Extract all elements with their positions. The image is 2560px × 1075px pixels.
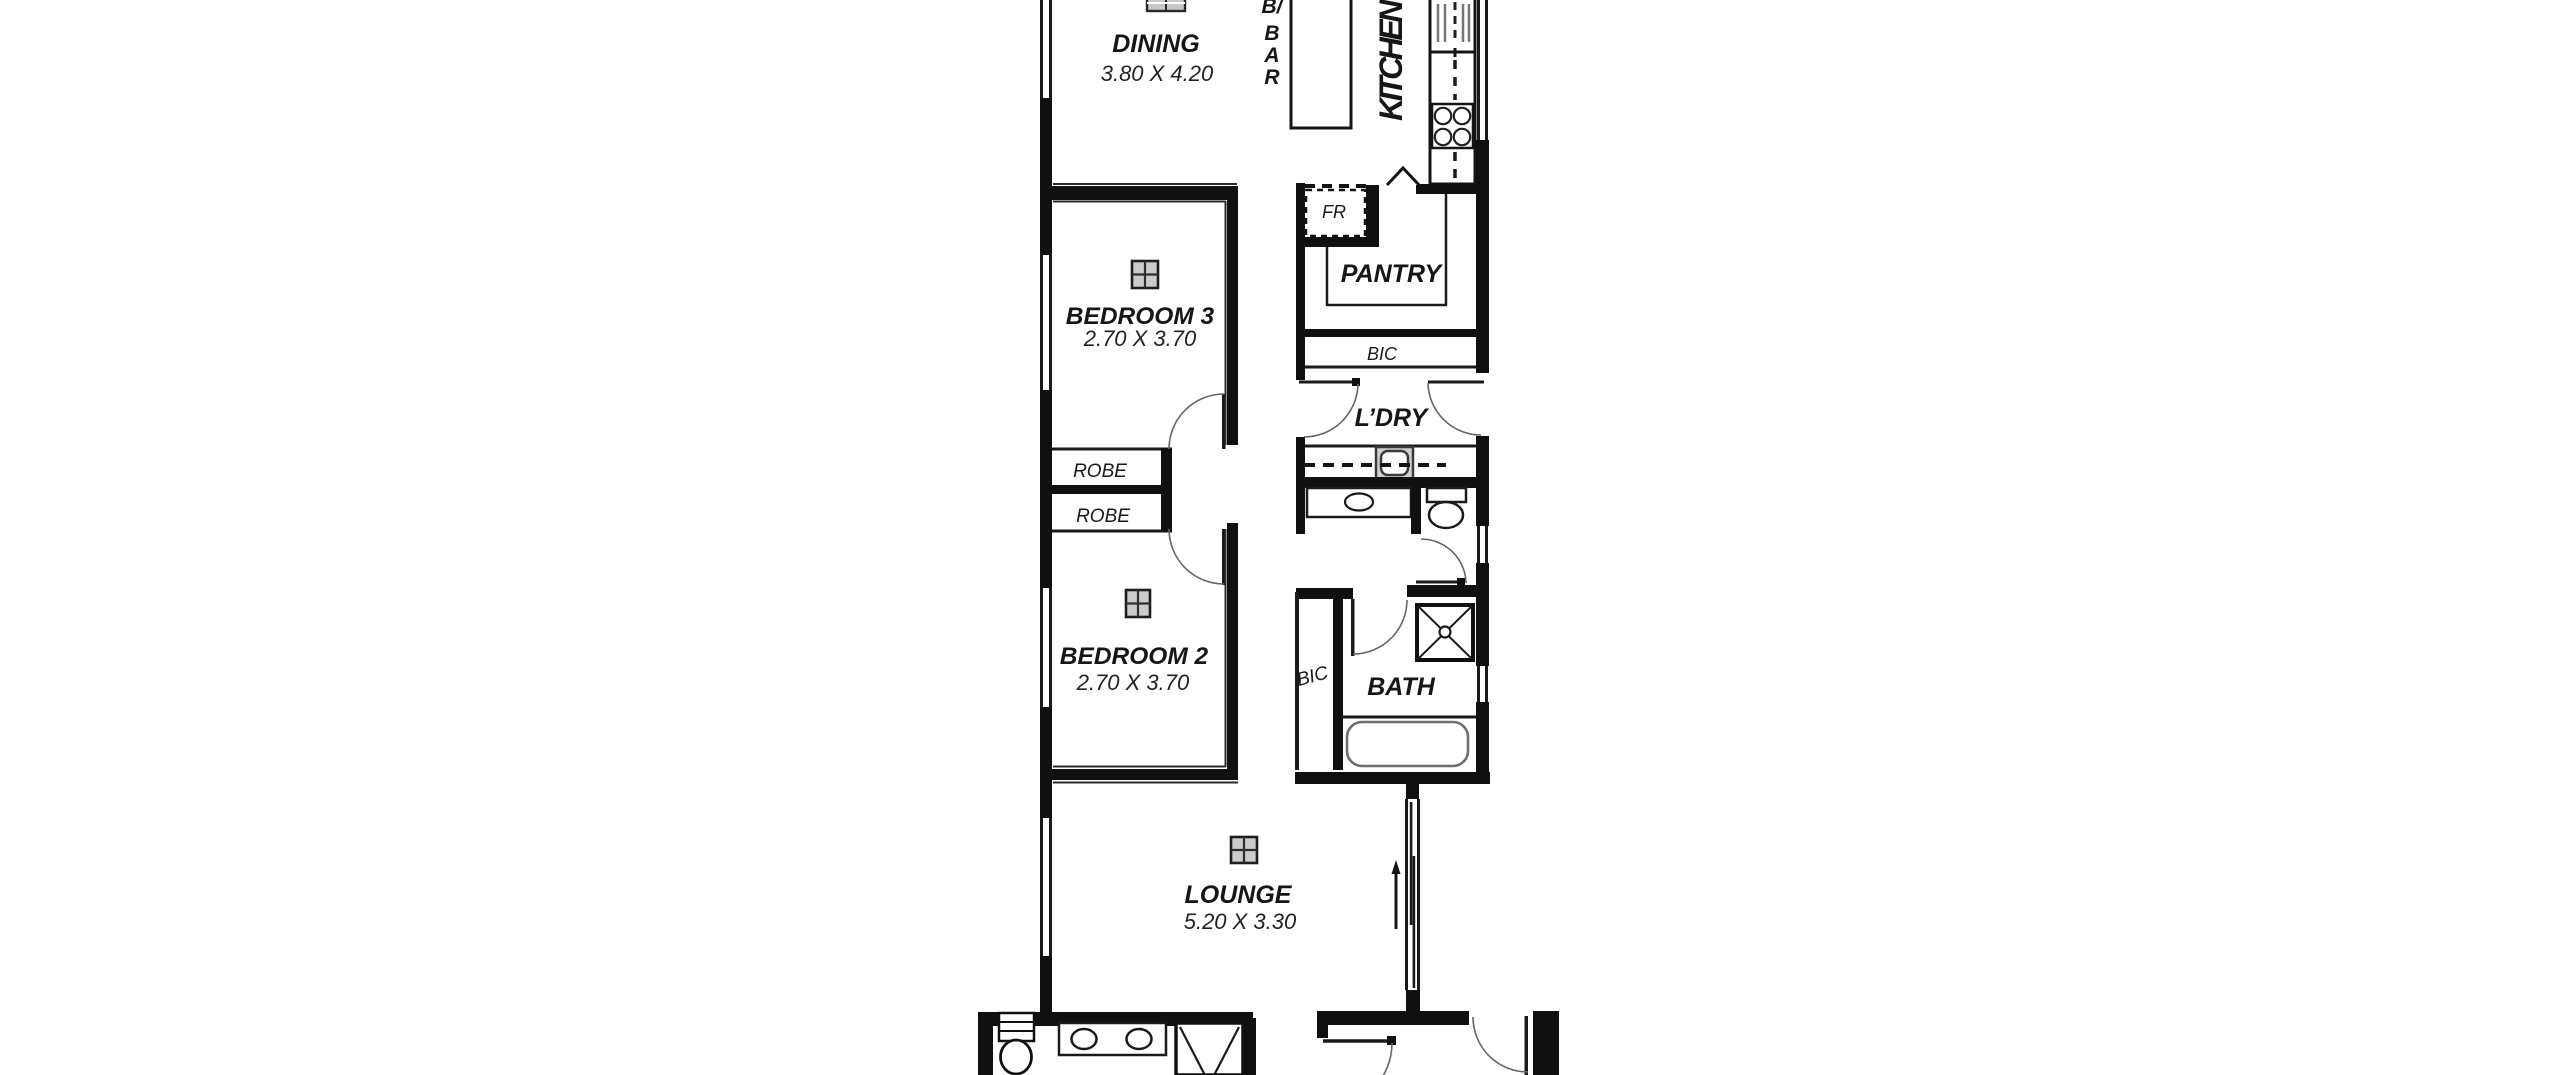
svg-text:L’DRY: L’DRY xyxy=(1355,404,1430,432)
svg-text:FR: FR xyxy=(1322,202,1346,222)
svg-text:PANTRY: PANTRY xyxy=(1341,260,1444,288)
svg-text:LOUNGE: LOUNGE xyxy=(1185,881,1293,909)
svg-text:A: A xyxy=(1263,44,1279,67)
svg-text:R: R xyxy=(1264,66,1280,89)
svg-text:5.20 X 3.30: 5.20 X 3.30 xyxy=(1184,909,1297,934)
svg-text:KITCHEN: KITCHEN xyxy=(1373,0,1409,121)
svg-text:ROBE: ROBE xyxy=(1076,506,1130,527)
svg-text:B/: B/ xyxy=(1262,0,1285,18)
svg-text:2.70 X 3.70: 2.70 X 3.70 xyxy=(1076,670,1190,695)
svg-text:3.80 X 4.20: 3.80 X 4.20 xyxy=(1101,61,1214,86)
svg-text:B: B xyxy=(1264,22,1279,45)
svg-text:ROBE: ROBE xyxy=(1073,461,1127,482)
svg-text:BIC: BIC xyxy=(1367,344,1398,364)
svg-text:2.70 X 3.70: 2.70 X 3.70 xyxy=(1083,326,1197,351)
svg-text:DINING: DINING xyxy=(1112,30,1200,58)
svg-text:BATH: BATH xyxy=(1367,673,1436,701)
svg-text:BEDROOM 2: BEDROOM 2 xyxy=(1060,643,1209,670)
